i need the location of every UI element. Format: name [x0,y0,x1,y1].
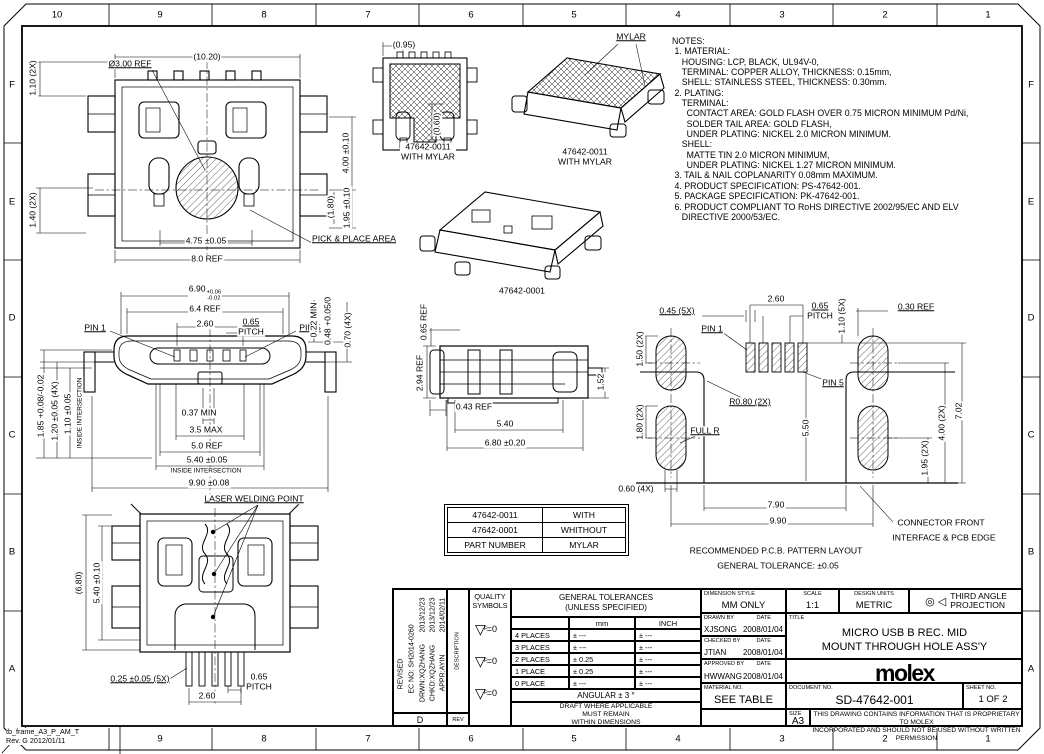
dim-4.00: 4.00 ±0.10 [341,132,351,175]
dimension-style-label: DIMENSION STYLE [704,591,755,597]
zone-label: 4 [675,10,680,21]
inch-header: INCH [659,619,677,628]
quality-symbol-value: =0 [487,624,497,634]
dim-0.65-pitch-bottom: 0.65PITCH [245,673,273,692]
logo-cell: molex [786,659,1023,683]
zone-label: C [9,430,16,441]
dim-9.90-pcb: 9.90 [769,516,788,526]
tol-row-label: 4 PLACES [511,629,569,641]
tolerance-title-cell: GENERAL TOLERANCES (UNLESS SPECIFIED) [511,589,701,617]
quality-symbol-value: =0 [487,656,497,666]
dim-5.40-front: 5.40 ±0.05 [186,455,229,465]
dim-2.60-front: 2.60 [196,319,215,329]
tol-row-label: 3 PLACES [511,641,569,653]
dim-0.65-pitch-front: 0.65PITCH [237,318,265,337]
title-cell: TITLEMICRO USB B REC. MID MOUNT THROUGH … [786,613,1023,659]
dim-2.60-pcb: 2.60 [767,294,786,304]
view-pcb [636,305,966,527]
table-row: 47642-0011WITH [448,508,626,523]
tol-row-mm: ± --- [569,629,635,641]
pin1-label-pcb: PIN 1 [700,324,724,334]
zone-label: 9 [157,734,162,745]
quality-symbols-header: QUALITY SYMBOLS [470,593,510,610]
quality-symbol: ▽F=0 [475,654,497,668]
tol-row-mm: ± --- [569,641,635,653]
checked-by-value: JTIAN [704,648,726,657]
dim-5.0: 5.0 REF [190,441,224,451]
checked-date-value: 2008/01/04 [743,648,783,657]
dimension-style-value: MM ONLY [702,600,785,611]
tolerance-header-mm: mm [569,617,635,629]
tol-row-mm: ± 0.25 [569,665,635,677]
zone-label: 5 [571,10,576,21]
sheet-no-value: 1 OF 2 [964,694,1022,705]
zone-label: B [9,547,15,558]
dim-5.50: 5.50 [801,419,811,438]
full-r-label: FULL R [689,426,720,436]
quality-symbol: ▽F=0 [475,622,497,636]
zone-label: 2 [882,10,887,21]
scale-cell: SCALE1:1 [786,589,839,613]
tolerance-header-blank [511,617,569,629]
design-units-label: DESIGN UNITS [854,591,894,597]
zone-label: 3 [779,734,784,745]
zone-label: 7 [365,734,370,745]
tol-row-inch: ± --- [635,641,701,653]
tolerance-title: GENERAL TOLERANCES (UNLESS SPECIFIED) [559,593,653,612]
dim-0.95: (0.95) [392,40,416,50]
dim-6.80-side: 6.80 ±0.20 [484,438,527,448]
dim-2.94: 2.94 REF [415,354,425,392]
size-value: A3 [787,716,809,727]
part-number-cell: 47642-0011 [448,508,543,523]
zone-label: F [9,80,15,91]
projection-label: THIRD ANGLE PROJECTION [950,592,1007,610]
zone-label: 1 [985,734,990,745]
view-iso-mylar [512,44,664,137]
mm-header: mm [596,619,609,628]
zone-label: 8 [261,10,266,21]
dim-6.90-tolerance: +0.06-0.02 [207,290,222,302]
zone-label: 8 [261,734,266,745]
zone-label: E [1028,197,1034,208]
scale-label: SCALE [803,591,821,597]
view-iso-plain [420,192,603,279]
caption-iso-plain: 47642-0001 [498,286,546,296]
projection-cell: ◎ ◁THIRD ANGLE PROJECTION [909,589,1023,613]
dim-1.95-pcb: 1.95 (2X) [920,439,930,476]
tol-row-mm: ± --- [569,677,635,689]
dim-1.10-front: 1.10 ±0.05 [63,393,73,436]
dim-0.60: (0.60) [432,112,442,136]
dim-0.65: 0.65 [251,672,268,682]
material-no-value: SEE TABLE [702,694,785,706]
dim-0.65-pitch-pcb: 0.65PITCH [806,302,834,321]
dim-0.22: 0.22 MIN [309,302,319,339]
tolerance-header-inch: INCH [635,617,701,629]
disclaimer-cell: THIS DRAWING CONTAINS INFORMATION THAT I… [810,709,1023,727]
zone-label: 3 [779,10,784,21]
rev-value: D [417,715,424,725]
dim-1.85: 1.85 +0.08/-0.02 [36,374,46,439]
rev-label: REV [452,717,463,723]
revision-drawn: DRWN:XQZHANG [418,643,428,703]
dim-1.50: 1.50 (2X) [635,330,645,367]
scale-value: 1:1 [787,600,838,611]
dim-5.40-side: 5.40 [496,419,515,429]
description-label: DESCRIPTION [453,631,463,671]
material-empty-cell [701,709,786,727]
revision-ec-no: EC NO: SH2014-0260 [407,623,417,694]
third-angle-projection-icon: ◎ ◁ [925,595,946,608]
revision-date: 2013/12/23 [428,596,438,633]
tol-row-inch: ± --- [635,653,701,665]
dim-7.90: 7.90 [767,500,786,510]
zone-label: A [9,664,15,675]
notes-block: NOTES: 1. MATERIAL: HOUSING: LCP, BLACK,… [672,36,968,222]
zone-label: 9 [157,10,162,21]
zone-label: 6 [468,10,473,21]
dim-0.65-ref: 0.65 REF [419,303,429,341]
angular-tolerance-cell: ANGULAR ± 3 ° [511,689,701,702]
dim-0.65: 0.65 [812,301,829,311]
approved-by-value: HWWANG [704,672,742,681]
dim-0.70: 0.70 (4X) [343,311,353,348]
dim-1.10-pcb: 1.10 (5X) [837,297,847,334]
pcb-layout-tolerance: GENERAL TOLERANCE: ±0.05 [716,561,840,571]
view-top [36,54,356,263]
dim-8.0: 8.0 REF [190,254,224,264]
dim-0.30: 0.30 REF [897,302,935,312]
zone-label: B [1028,547,1034,558]
pitch-label: PITCH [807,310,833,320]
quality-symbols-cell: QUALITY SYMBOLS ▽F=0 ▽F=0 ▽F=0 [469,589,511,727]
revision-revised: REVISED [396,658,406,691]
revision-date: 2013/12/23 [418,596,428,633]
dim-1.40: 1.40 (2X) [28,191,38,228]
document-no-label: DOCUMENT NO. [789,685,833,691]
pin5-label-pcb: PIN 5 [821,378,845,388]
material-no-cell: MATERIAL NO.SEE TABLE [701,683,786,709]
dim-r0.80: R0.80 (2X) [728,397,772,407]
dim-0.25: 0.25 ±0.05 (5X) [109,674,170,684]
drawing-title: MICRO USB B REC. MID MOUNT THROUGH HOLE … [787,626,1022,654]
dim-7.02: 7.02 [954,402,964,421]
zone-label: F [1028,80,1034,91]
drawn-date-value: 2008/01/04 [743,625,783,634]
dim-dia-3.00: Ø3.00 REF [108,59,153,69]
tol-row-inch: ± --- [635,629,701,641]
tol-row-inch: ± --- [635,665,701,677]
table-row: PART NUMBERMYLAR [448,538,626,553]
tol-row-label: 0 PLACE [511,677,569,689]
zone-label: 1 [985,10,990,21]
dim-6.90-value: 6.90 [189,284,206,294]
document-no-value: SD-47642-001 [787,693,962,707]
pcb-edge-label: INTERFACE & PCB EDGE [891,533,996,543]
revision-approved: APPR:AYIN [438,654,448,693]
dim-5.40-bottom: 5.40 ±0.10 [92,562,102,605]
dim-0.65: 0.65 [243,317,260,327]
approved-date-value: 2008/01/04 [743,672,783,681]
checked-by-cell: CHECKED BYDATEJTIAN2008/01/04 [701,636,786,659]
dim-4.75: 4.75 ±0.05 [185,236,228,246]
drawn-by-value: XJSONG [704,625,737,634]
dim-0.37: 0.37 MIN [181,408,218,418]
mylar-cell: WHITHOUT [543,523,626,538]
sheet-no-label: SHEET NO. [966,685,996,691]
view-side [423,328,609,451]
inside-intersection-label-vert: INSIDE INTERSECTION [77,377,84,450]
dim-4.00-pcb: 4.00 (2X) [937,404,947,441]
dim-6.80-bottom: (6.80) [74,571,84,595]
dim-3.5: 3.5 MAX [189,425,224,435]
dimension-style-cell: DIMENSION STYLEMM ONLY [701,589,786,613]
drawn-by-cell: DRAWN BYDATEXJSONG2008/01/04 [701,613,786,636]
dim-1.80-pcb: 1.80 (2X) [635,403,645,440]
tol-row-inch: ± --- [635,677,701,689]
laser-welding-label: LASER WELDING POINT [203,494,304,504]
dim-1.95: 1.95 ±0.10 [342,187,352,230]
pin1-label-front: PIN 1 [83,323,107,333]
zone-label: C [1028,430,1035,441]
zone-label: D [9,313,16,324]
dim-2.60-bottom: 2.60 [198,691,217,701]
dim-0.45: 0.45 (5X) [658,306,695,316]
zone-label: 4 [675,734,680,745]
sheet-no-cell: SHEET NO.1 OF 2 [963,683,1023,709]
zone-label: 7 [365,10,370,21]
zone-label: A [1028,664,1034,675]
zone-label: 10 [52,10,63,21]
draft-note-cell: DRAFT WHERE APPLICABLE MUST REMAIN WITHI… [511,702,701,727]
pick-place-label: PICK & PLACE AREA [311,234,397,244]
mylar-cell: WITH [543,508,626,523]
part-number-table: 47642-0011WITH 47642-0001WHITHOUT PART N… [447,507,626,553]
tol-row-label: 2 PLACES [511,653,569,665]
tol-row-mm: ± 0.25 [569,653,635,665]
approved-by-cell: APPROVED BYDATEHWWANG2008/01/04 [701,659,786,683]
mylar-header: MYLAR [543,538,626,553]
zone-label: E [9,197,15,208]
rev-value-cell: D [393,713,447,727]
drawing-sheet: 10 9 8 7 6 5 4 3 2 1 9 8 7 6 5 4 3 2 1 F… [0,0,1044,754]
table-row: 47642-0001WHITHOUT [448,523,626,538]
frame-stamp: tb_frame_A3_P_AM_T Rev. G 2012/01/11 [6,728,82,745]
tol-row-label: 1 PLACE [511,665,569,677]
document-no-cell: DOCUMENT NO.SD-47642-001 [786,683,963,709]
dim-10.20: (10.20) [192,52,221,62]
dim-9.90-front: 9.90 ±0.08 [188,478,231,488]
dim-6.90: 6.90+0.06-0.02 [188,285,222,302]
pcb-layout-title: RECOMMENDED P.C.B. PATTERN LAYOUT [689,546,864,556]
caption-with-mylar-front: 47642-0011 WITH MYLAR [400,143,456,162]
quality-symbol-letter: F [484,658,487,664]
view-mylar-front [373,42,477,150]
caption-iso-mylar: 47642-0011 WITH MYLAR [557,148,613,167]
design-units-value: METRIC [840,600,908,611]
dim-6.4: 6.4 REF [188,304,222,314]
part-number-cell: 47642-0001 [448,523,543,538]
revision-checked: CHKD:XQZHANG [428,644,438,702]
zone-label: 5 [571,734,576,745]
material-no-label: MATERIAL NO. [704,685,743,691]
quality-symbol-letter: F [484,690,487,696]
quality-symbol-value: =0 [487,688,497,698]
pitch-label: PITCH [246,681,272,691]
zone-label: D [1028,313,1035,324]
quality-symbol-letter: F [484,626,487,632]
title-label: TITLE [789,615,804,621]
zone-label: 2 [882,734,887,745]
dim-0.48: 0.48 +0.05/0 [323,296,333,346]
dim-1.52: 1.52 [596,373,606,392]
size-cell: SIZEA3 [786,709,810,727]
quality-symbol: ▽F=0 [475,686,497,700]
zone-label: 6 [468,734,473,745]
dim-1.10: 1.10 (2X) [28,59,38,96]
title-block: REVISED EC NO: SH2014-0260 DRWN:XQZHANG … [392,588,1022,726]
dim-1.80: (1.80) [326,195,336,219]
mylar-label: MYLAR [615,32,647,42]
rev-label-cell: REV [447,713,469,727]
dim-0.43: 0.43 REF [455,402,493,412]
dim-1.20: 1.20 ±0.05 (4X) [50,380,60,441]
connector-front-label: CONNECTOR FRONT [896,518,985,528]
design-units-cell: DESIGN UNITSMETRIC [839,589,909,613]
inside-intersection-label: INSIDE INTERSECTION [170,468,243,475]
revision-date: 2014/02/11 [438,597,448,634]
dim-0.60-pcb: 0.60 (4X) [617,484,654,494]
part-number-header: PART NUMBER [448,538,543,553]
pitch-label: PITCH [238,326,264,336]
